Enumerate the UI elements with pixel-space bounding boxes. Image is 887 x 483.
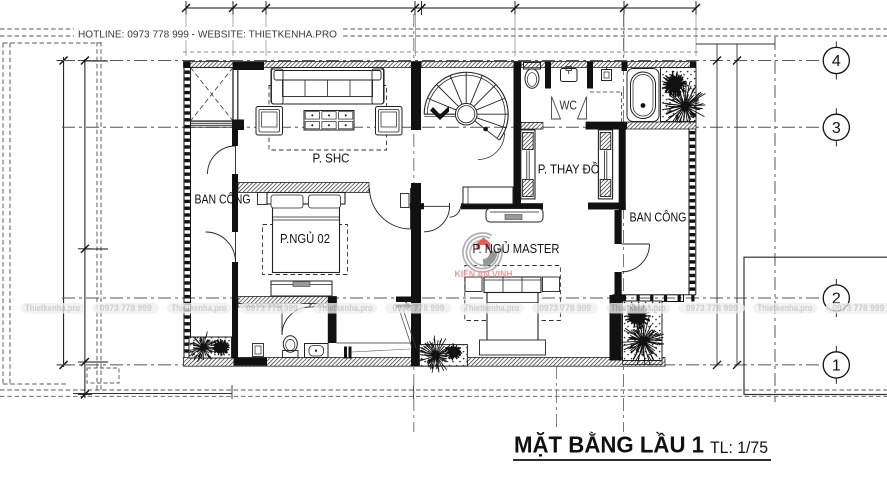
svg-text:Thietkenha.pro: Thietkenha.pro xyxy=(611,303,666,313)
svg-text:Thietkenha.pro: Thietkenha.pro xyxy=(318,303,373,313)
svg-text:0973 778 999: 0973 778 999 xyxy=(539,303,591,313)
svg-text:0973 778 999: 0973 778 999 xyxy=(832,303,884,313)
svg-text:MẶT BẰNG LẦU 1: MẶT BẰNG LẦU 1 xyxy=(514,431,704,458)
svg-text:Thietkenha.pro: Thietkenha.pro xyxy=(25,303,80,313)
svg-text:Thietkenha.pro: Thietkenha.pro xyxy=(758,303,813,313)
svg-text:BAN CÔNG: BAN CÔNG xyxy=(195,192,251,207)
svg-text:HOTLINE: 0973 778 999 - WEBSIT: HOTLINE: 0973 778 999 - WEBSITE: THIETKE… xyxy=(78,29,337,41)
svg-text:3: 3 xyxy=(832,120,841,137)
svg-text:P.NGỦ 02: P.NGỦ 02 xyxy=(280,231,330,246)
svg-text:TL: 1/75: TL: 1/75 xyxy=(710,439,768,457)
svg-text:P. THAY ĐỒ: P. THAY ĐỒ xyxy=(538,162,600,177)
svg-text:4: 4 xyxy=(832,53,841,70)
svg-text:KIẾN AN VINH: KIẾN AN VINH xyxy=(455,269,513,279)
svg-text:WC: WC xyxy=(559,99,577,113)
svg-text:P. SHC: P. SHC xyxy=(313,152,350,166)
svg-text:BAN CÔNG: BAN CÔNG xyxy=(630,210,687,225)
svg-text:0973 778 999: 0973 778 999 xyxy=(100,303,152,313)
svg-text:1: 1 xyxy=(832,357,841,374)
svg-text:0973 778 999: 0973 778 999 xyxy=(686,303,738,313)
svg-text:P. NGỦ MASTER: P. NGỦ MASTER xyxy=(473,241,560,256)
svg-text:0973 778 999: 0973 778 999 xyxy=(393,303,445,313)
svg-text:0973 778 999: 0973 778 999 xyxy=(246,303,298,313)
svg-text:Thietkenha.pro: Thietkenha.pro xyxy=(464,303,519,313)
svg-text:Thietkenha.pro: Thietkenha.pro xyxy=(172,303,227,313)
